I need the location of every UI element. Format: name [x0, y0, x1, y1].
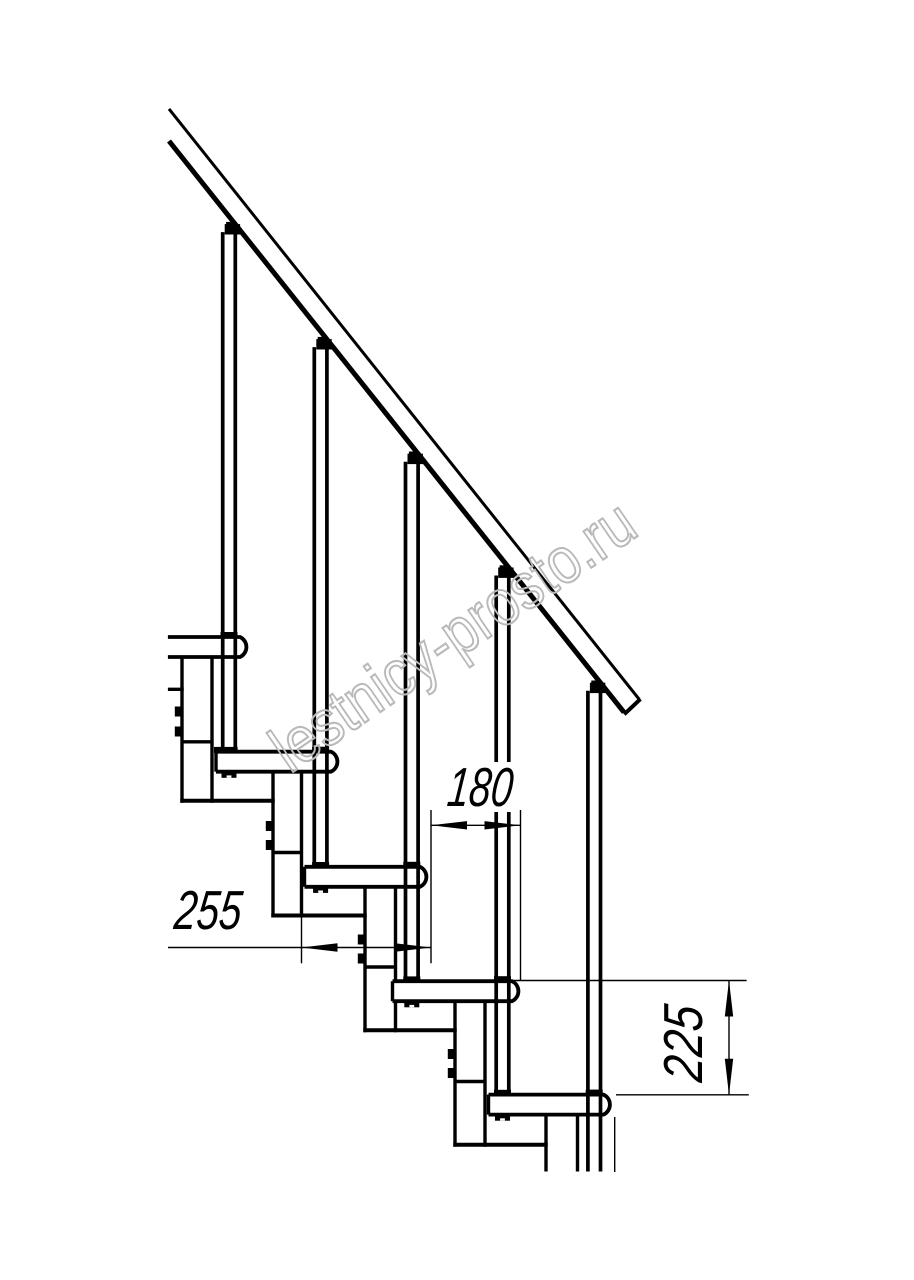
svg-text:180: 180: [445, 756, 517, 818]
svg-text:225: 225: [652, 1001, 714, 1085]
svg-text:255: 255: [171, 879, 245, 941]
